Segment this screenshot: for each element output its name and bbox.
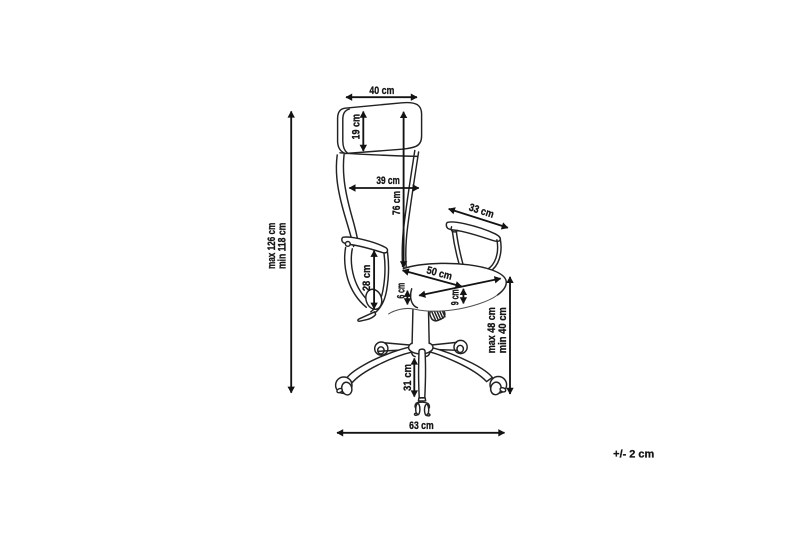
svg-text:min 40 cm: min 40 cm (497, 307, 509, 353)
svg-text:39 cm: 39 cm (376, 175, 400, 187)
svg-text:63 cm: 63 cm (409, 420, 434, 432)
svg-text:19 cm: 19 cm (350, 114, 362, 140)
svg-text:+/- 2 cm: +/- 2 cm (613, 448, 654, 460)
svg-text:40 cm: 40 cm (369, 85, 394, 97)
svg-text:28 cm: 28 cm (361, 265, 373, 292)
svg-text:76 cm: 76 cm (391, 191, 403, 215)
svg-text:6 cm: 6 cm (396, 283, 408, 299)
svg-text:31 cm: 31 cm (402, 364, 414, 391)
svg-text:min 118 cm: min 118 cm (276, 223, 288, 269)
svg-text:9 cm: 9 cm (450, 289, 462, 305)
